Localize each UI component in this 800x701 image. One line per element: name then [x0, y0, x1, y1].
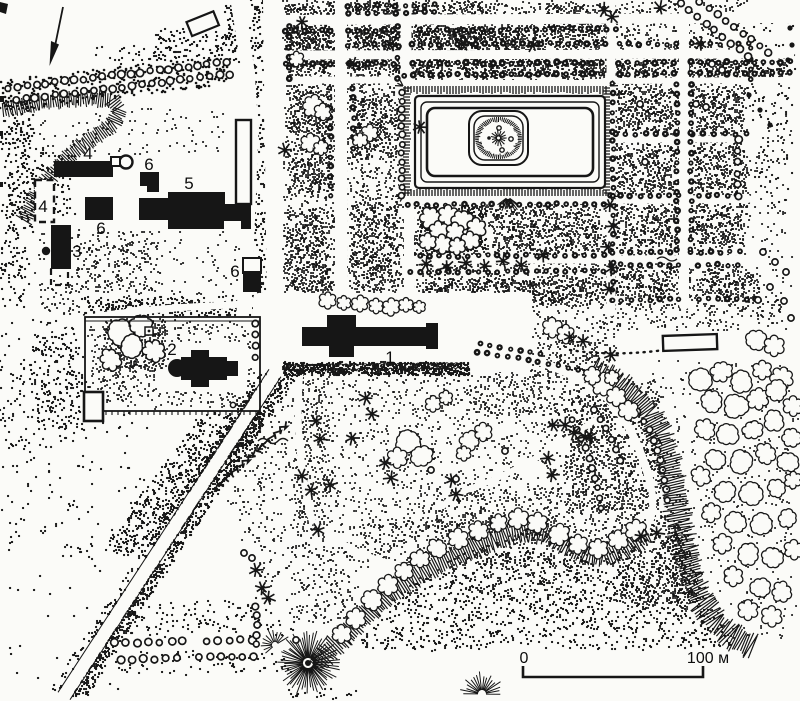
svg-text:0: 0 — [520, 650, 529, 667]
svg-text:1: 1 — [385, 348, 394, 367]
svg-text:4: 4 — [83, 144, 92, 163]
svg-text:100 м: 100 м — [687, 650, 729, 667]
svg-text:5: 5 — [184, 174, 193, 193]
svg-text:2: 2 — [167, 340, 176, 359]
svg-text:3: 3 — [72, 242, 81, 261]
svg-text:4: 4 — [38, 197, 47, 216]
svg-text:6: 6 — [96, 219, 105, 238]
svg-text:6: 6 — [144, 155, 153, 174]
svg-text:6: 6 — [230, 262, 239, 281]
